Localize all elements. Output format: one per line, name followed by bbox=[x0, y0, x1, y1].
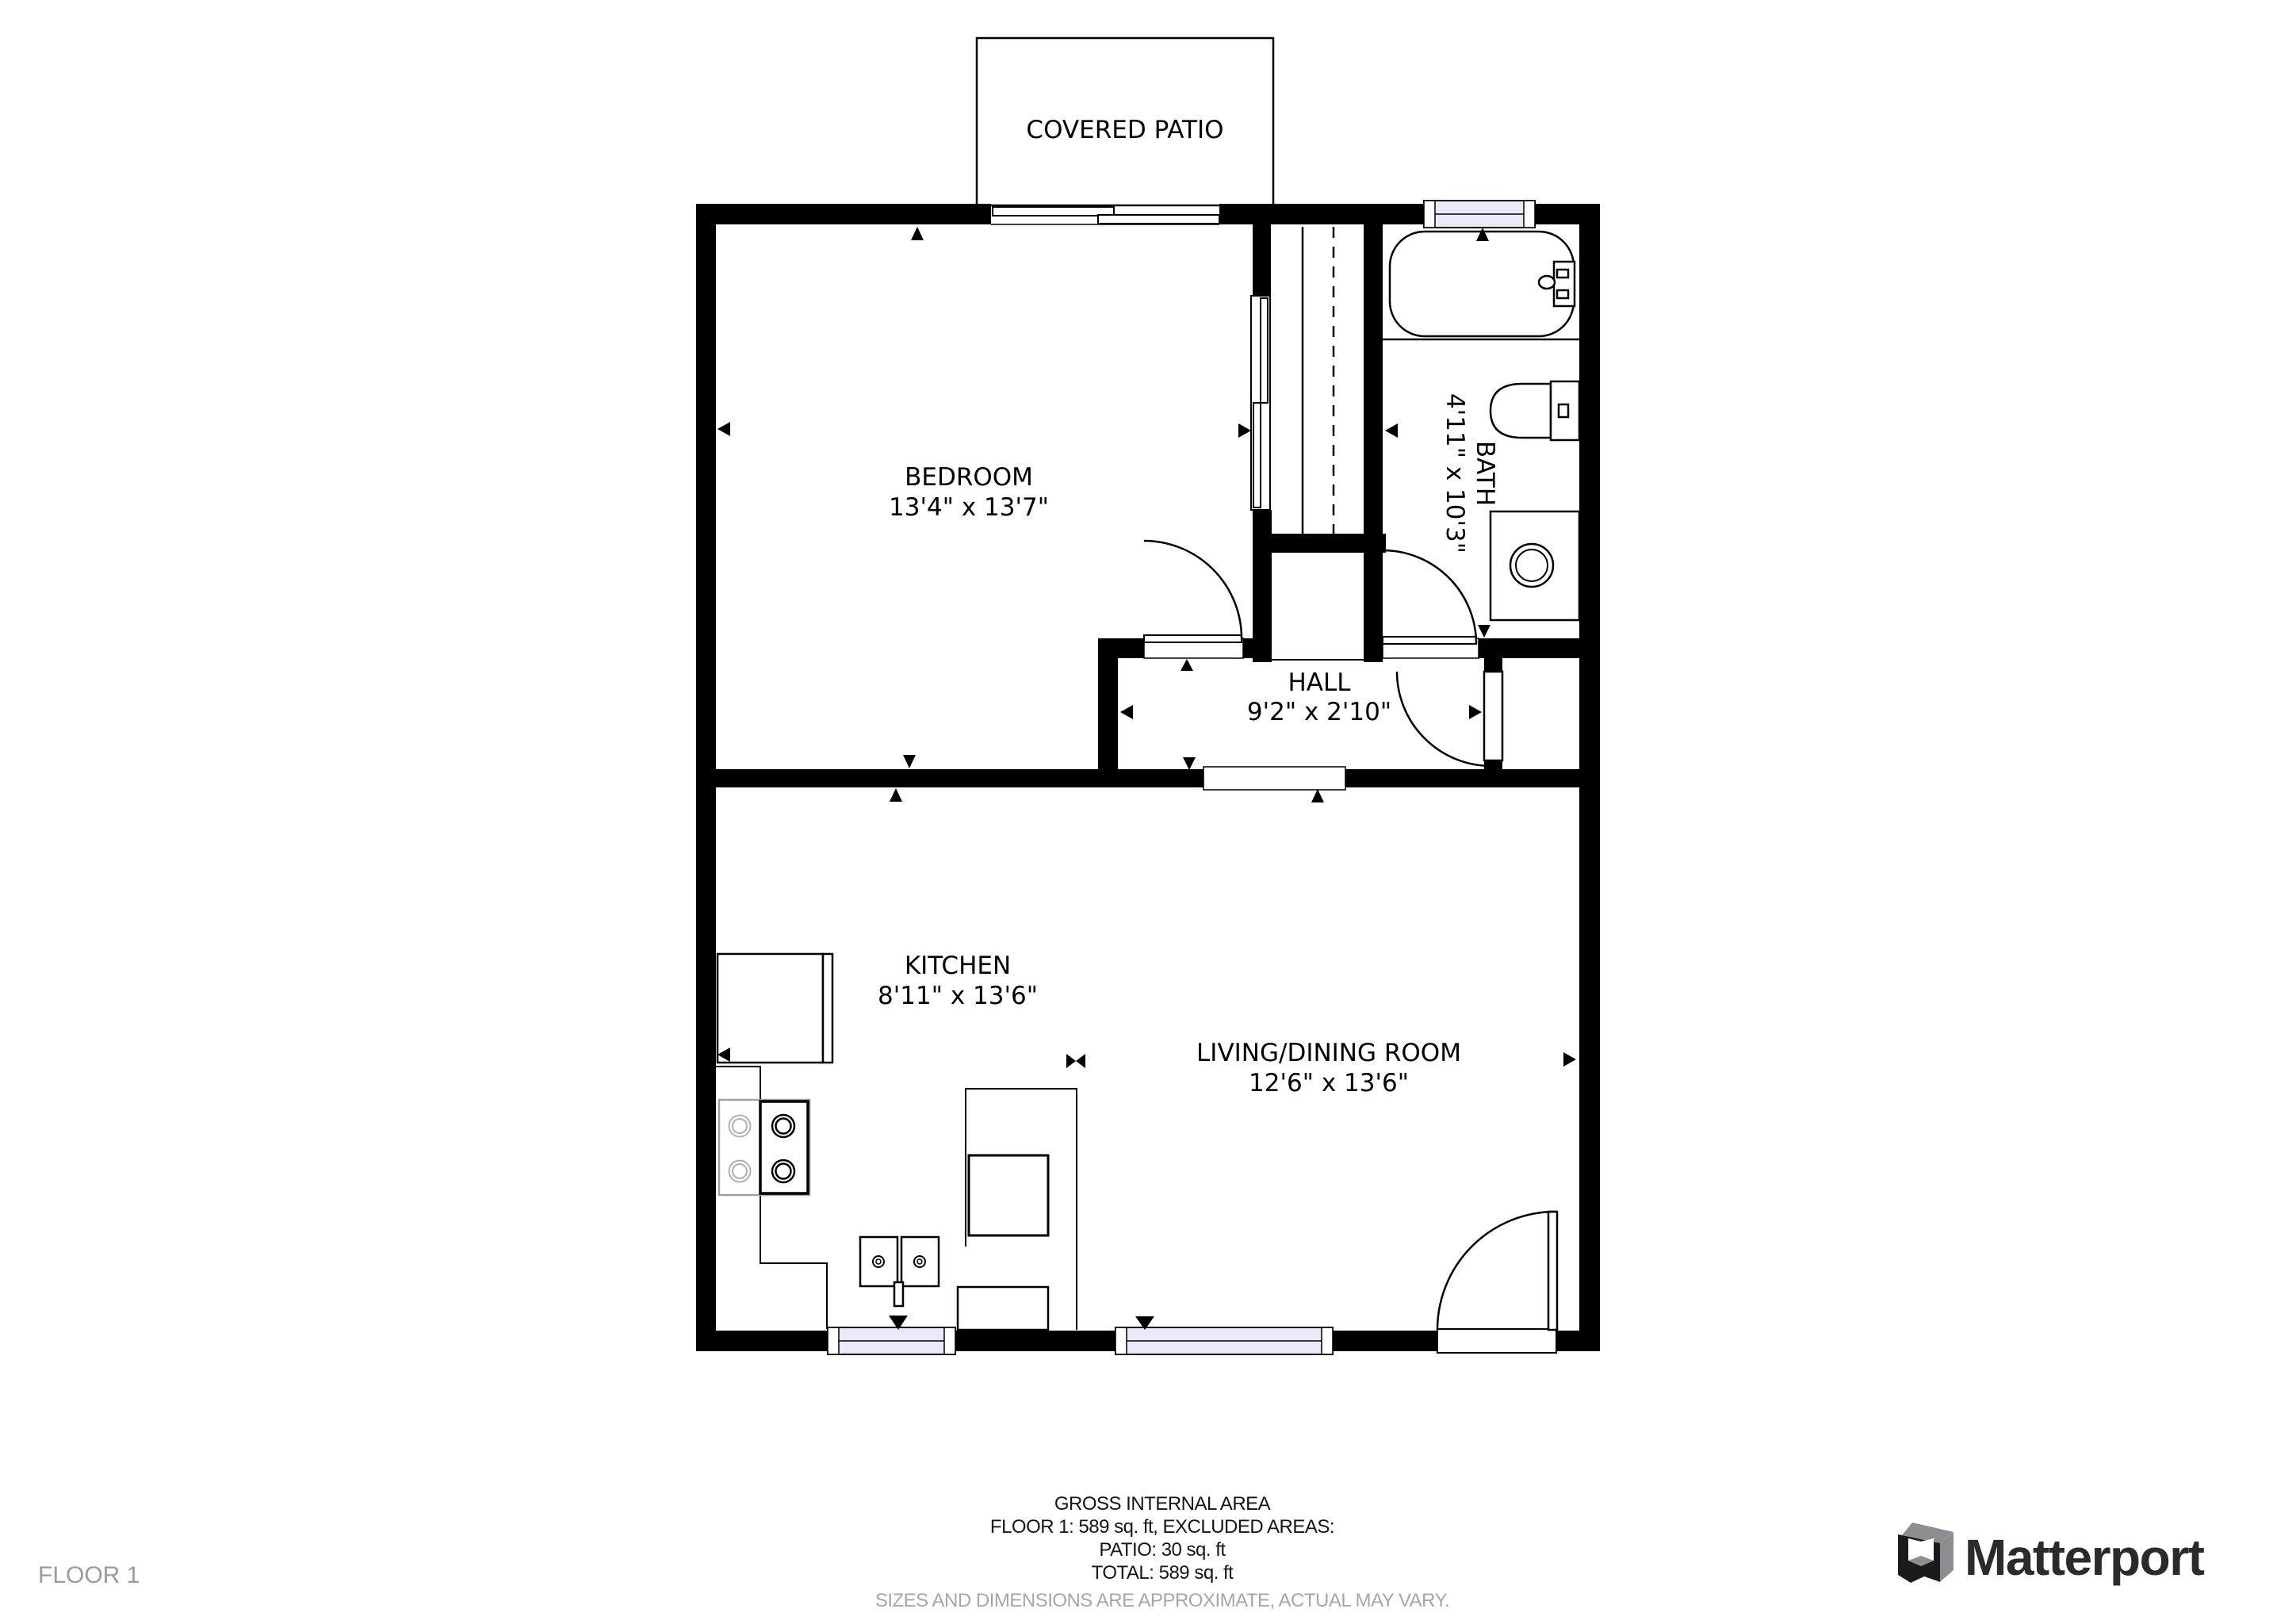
kitchen-fixtures bbox=[716, 954, 1077, 1330]
bedroom-door-arc bbox=[1144, 541, 1242, 638]
walls bbox=[696, 204, 1600, 1351]
living-dims: 12'6" x 13'6" bbox=[1249, 1069, 1409, 1097]
living-label: LIVING/DINING ROOM bbox=[1196, 1039, 1461, 1067]
hall-entry-door-arc bbox=[1397, 672, 1491, 766]
bath-vanity-sink bbox=[1490, 511, 1579, 620]
kitchen-label: KITCHEN bbox=[905, 952, 1011, 980]
total-area-line: TOTAL: 589 sq. ft bbox=[1092, 1562, 1234, 1584]
kitchen-peninsula bbox=[958, 1089, 1077, 1330]
living-entry-door bbox=[1437, 1212, 1557, 1353]
floor-selector-label[interactable]: FLOOR 1 bbox=[38, 1562, 140, 1588]
patio-area-line: PATIO: 30 sq. ft bbox=[1099, 1539, 1226, 1561]
bath-door bbox=[1383, 550, 1479, 658]
living-window bbox=[1115, 1327, 1333, 1354]
matterport-logo-text: Matterport bbox=[1965, 1529, 2205, 1586]
living-entry-door-arc bbox=[1437, 1212, 1556, 1330]
disclaimer-text: SIZES AND DIMENSIONS ARE APPROXIMATE, AC… bbox=[875, 1590, 1449, 1611]
dishwasher bbox=[969, 1155, 1048, 1235]
toilet bbox=[1490, 381, 1579, 440]
hall-label: HALL bbox=[1288, 668, 1351, 697]
hall-living-opening bbox=[1203, 767, 1345, 790]
bedroom-dims: 13'4" x 13'7" bbox=[889, 493, 1049, 522]
covered-patio: COVERED PATIO bbox=[977, 38, 1273, 205]
sink-faucet bbox=[894, 1282, 903, 1306]
stove bbox=[719, 1100, 809, 1195]
matterport-logo-icon bbox=[1898, 1522, 1954, 1583]
floor-plan-canvas: COVERED PATIO bbox=[0, 0, 2296, 1624]
matterport-logo: Matterport bbox=[1898, 1522, 2205, 1586]
area-summary: GROSS INTERNAL AREA FLOOR 1: 589 sq. ft,… bbox=[875, 1493, 1449, 1611]
closet-sliding-door bbox=[1251, 296, 1270, 510]
bath-door-arc bbox=[1383, 550, 1476, 644]
bedroom-door bbox=[1144, 541, 1243, 658]
bath-label: BATH bbox=[1471, 441, 1499, 506]
room-labels: BEDROOM 13'4" x 13'7" BATH 4'11" x 10'3"… bbox=[878, 393, 1499, 1097]
patio-sliding-door bbox=[991, 207, 1219, 224]
kitchen-dims: 8'11" x 13'6" bbox=[878, 982, 1038, 1010]
bedroom-label: BEDROOM bbox=[905, 463, 1033, 492]
bath-dims: 4'11" x 10'3" bbox=[1441, 393, 1469, 553]
refrigerator bbox=[717, 954, 832, 1063]
gross-area-line: GROSS INTERNAL AREA bbox=[1054, 1493, 1271, 1515]
kitchen-sink bbox=[860, 1237, 939, 1306]
floor-area-line: FLOOR 1: 589 sq. ft, EXCLUDED AREAS: bbox=[990, 1516, 1334, 1538]
bath-window bbox=[1424, 201, 1535, 228]
patio-label: COVERED PATIO bbox=[1026, 116, 1223, 144]
floorplan-page: COVERED PATIO bbox=[0, 0, 2296, 1624]
base-cabinet bbox=[958, 1287, 1048, 1330]
hall-dims: 9'2" x 2'10" bbox=[1247, 698, 1391, 726]
hall-entry-door bbox=[1397, 672, 1502, 766]
kitchen-window bbox=[828, 1327, 955, 1354]
bath-fixtures bbox=[1383, 232, 1579, 620]
